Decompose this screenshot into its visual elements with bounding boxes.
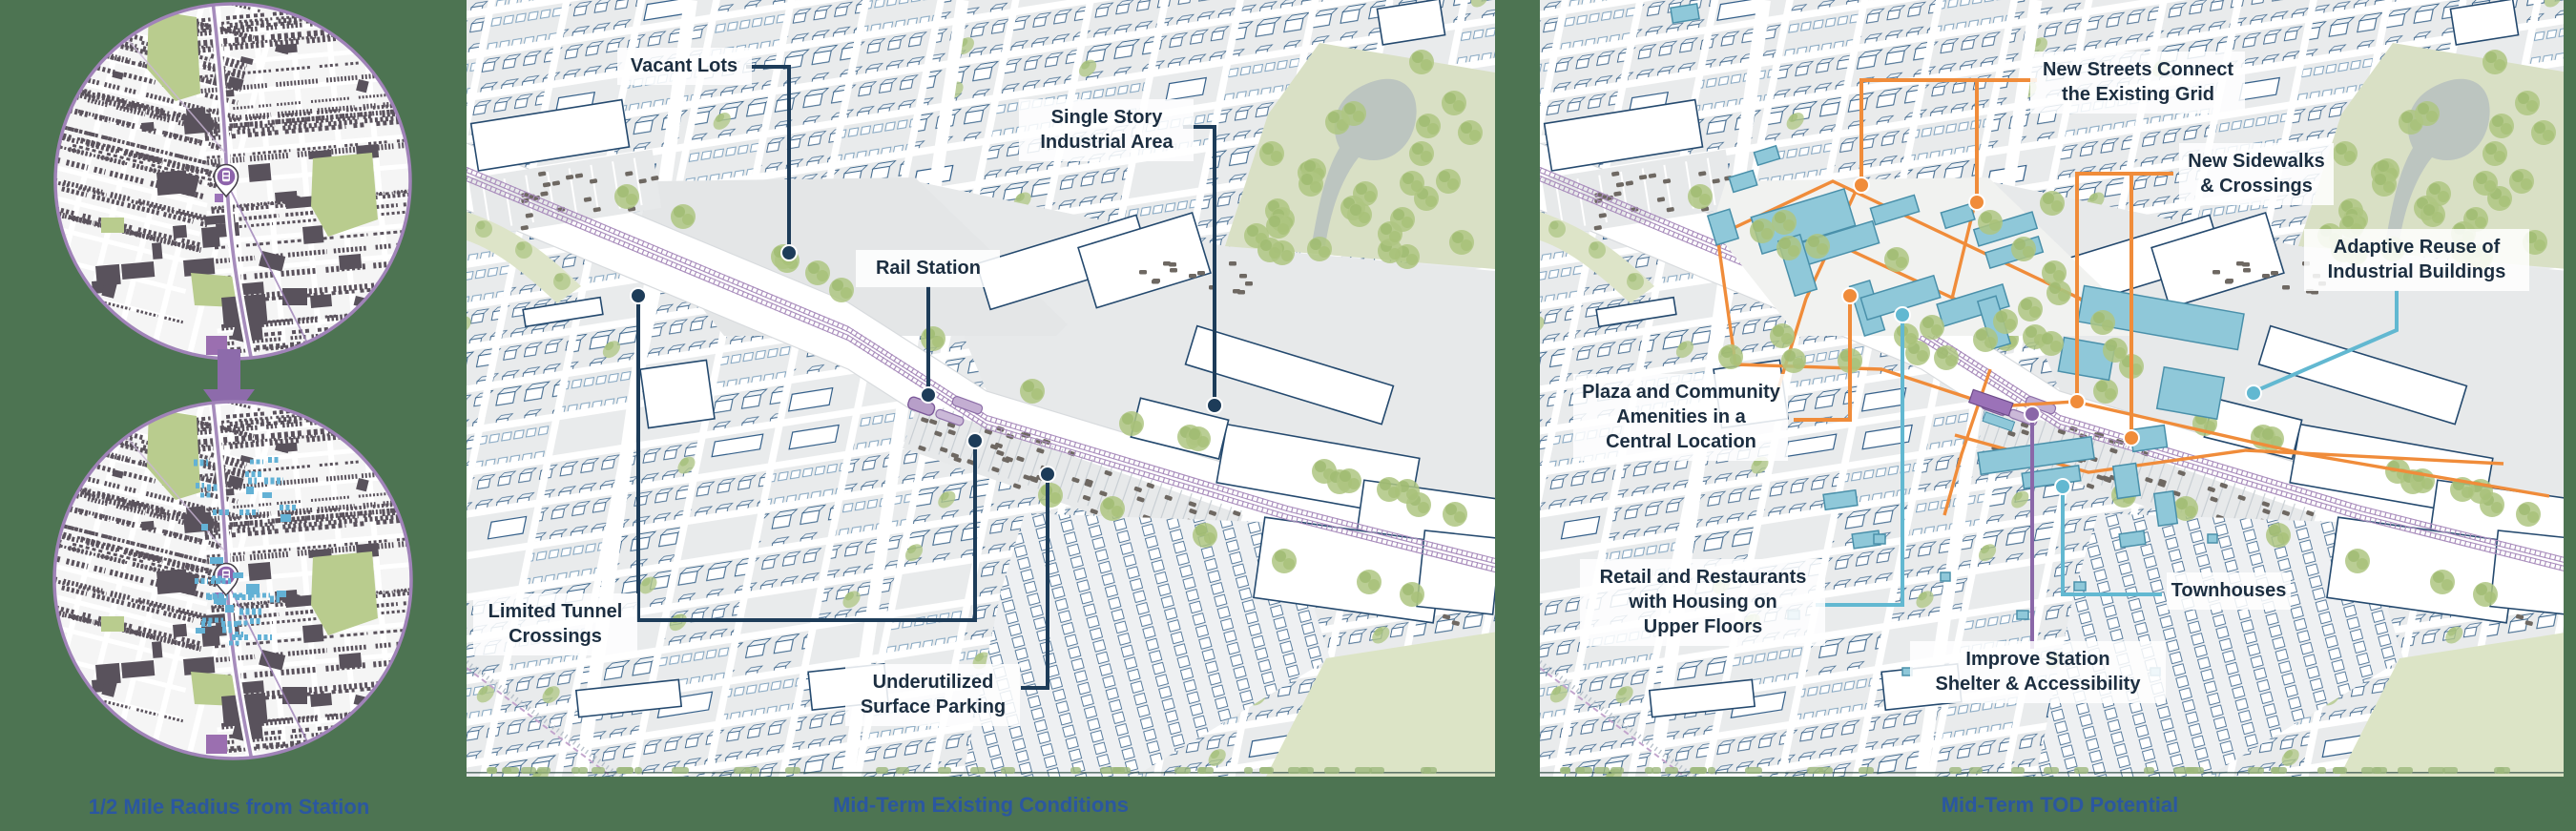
svg-text:Improve Station: Improve Station	[1965, 649, 2109, 670]
svg-text:Single Story: Single Story	[1051, 107, 1164, 128]
svg-text:Crossings: Crossings	[509, 626, 602, 647]
svg-text:New Sidewalks: New Sidewalks	[2188, 151, 2324, 172]
svg-text:Retail and Restaurants: Retail and Restaurants	[1600, 567, 1807, 588]
svg-text:with Housing on: with Housing on	[1628, 592, 1777, 613]
svg-text:Amenities in a: Amenities in a	[1616, 406, 1746, 427]
svg-text:Central Location: Central Location	[1606, 431, 1756, 452]
svg-text:Adaptive Reuse of: Adaptive Reuse of	[2334, 237, 2501, 258]
svg-text:Mid-Term TOD Potential: Mid-Term TOD Potential	[1942, 793, 2179, 817]
svg-text:Limited Tunnel: Limited Tunnel	[488, 601, 623, 622]
svg-text:Underutilized: Underutilized	[873, 672, 994, 693]
svg-text:Surface Parking: Surface Parking	[861, 696, 1006, 717]
svg-text:Industrial Area: Industrial Area	[1040, 132, 1174, 153]
svg-text:Mid-Term Existing Conditions: Mid-Term Existing Conditions	[833, 793, 1129, 817]
svg-text:Plaza and Community: Plaza and Community	[1582, 382, 1781, 403]
svg-text:Upper Floors: Upper Floors	[1644, 616, 1762, 637]
svg-text:Vacant Lots: Vacant Lots	[631, 55, 737, 76]
svg-text:Shelter & Accessibility: Shelter & Accessibility	[1936, 674, 2142, 695]
svg-text:& Crossings: & Crossings	[2200, 176, 2313, 197]
svg-text:Townhouses: Townhouses	[2171, 580, 2287, 601]
svg-text:New Streets Connect: New Streets Connect	[2043, 59, 2233, 80]
svg-text:Industrial Buildings: Industrial Buildings	[2328, 261, 2506, 282]
svg-text:the Existing Grid: the Existing Grid	[2062, 84, 2214, 105]
svg-text:1/2 Mile Radius from Station: 1/2 Mile Radius from Station	[89, 795, 370, 819]
svg-text:Rail Station: Rail Station	[876, 258, 981, 279]
